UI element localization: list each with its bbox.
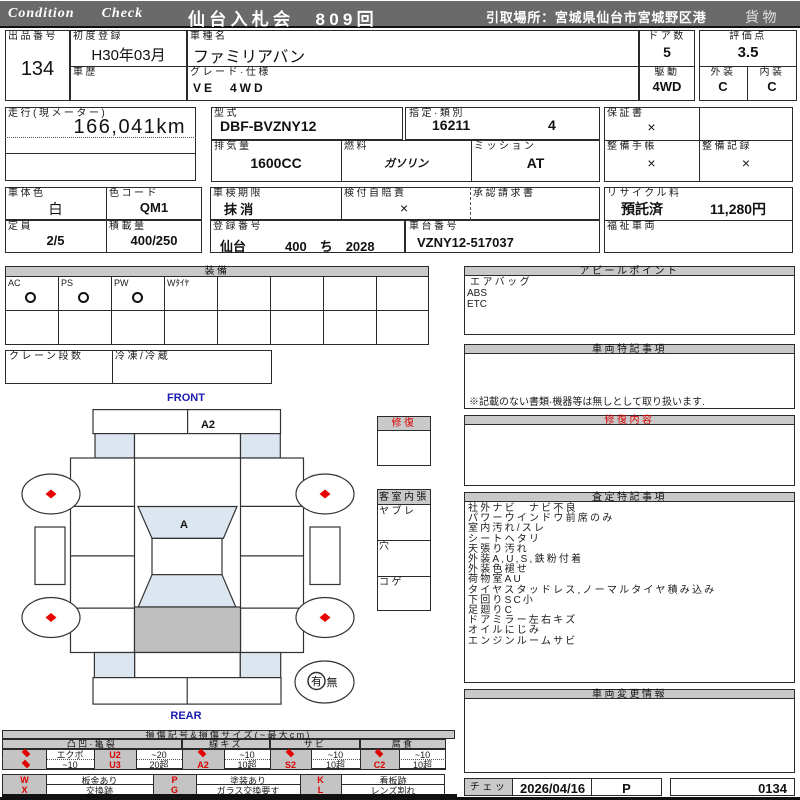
svg-text:A: A (180, 519, 188, 531)
svg-text:無: 無 (327, 675, 338, 689)
svg-text:A2: A2 (201, 419, 215, 431)
svg-text:有: 有 (311, 674, 322, 688)
